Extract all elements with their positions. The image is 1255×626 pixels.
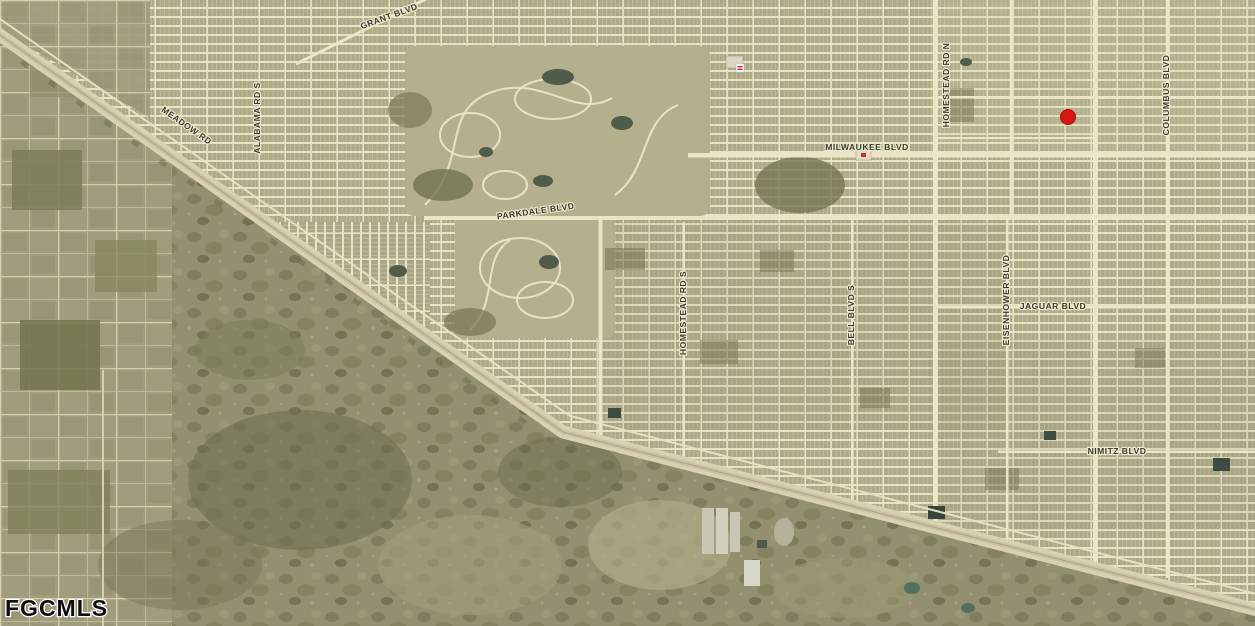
watermark-fgcmls: FGCMLS bbox=[5, 595, 108, 621]
road-label-eisenhower-blvd: EISENHOWER BLVD bbox=[1001, 255, 1011, 346]
road-label-homestead-rd-n: HOMESTEAD RD N bbox=[941, 43, 951, 128]
road-label-alabama-rd-s: ALABAMA RD S bbox=[252, 82, 262, 153]
road-label-jaguar-blvd: JAGUAR BLVD bbox=[1020, 301, 1086, 311]
road-label-milwaukee-blvd: MILWAUKEE BLVD bbox=[825, 142, 908, 152]
mls-satellite-map: GRANT BLVD MEADOW RD ALABAMA RD S PARKDA… bbox=[0, 0, 1255, 626]
satellite-imagery: GRANT BLVD MEADOW RD ALABAMA RD S PARKDA… bbox=[0, 0, 1255, 626]
road-label-bell-blvd-s: BELL BLVD S bbox=[846, 285, 856, 346]
location-marker bbox=[1061, 110, 1076, 125]
road-label-homestead-rd-s: HOMESTEAD RD S bbox=[678, 271, 688, 355]
road-label-nimitz-blvd: NIMITZ BLVD bbox=[1088, 446, 1147, 456]
road-label-columbus-blvd: COLUMBUS BLVD bbox=[1161, 55, 1171, 136]
